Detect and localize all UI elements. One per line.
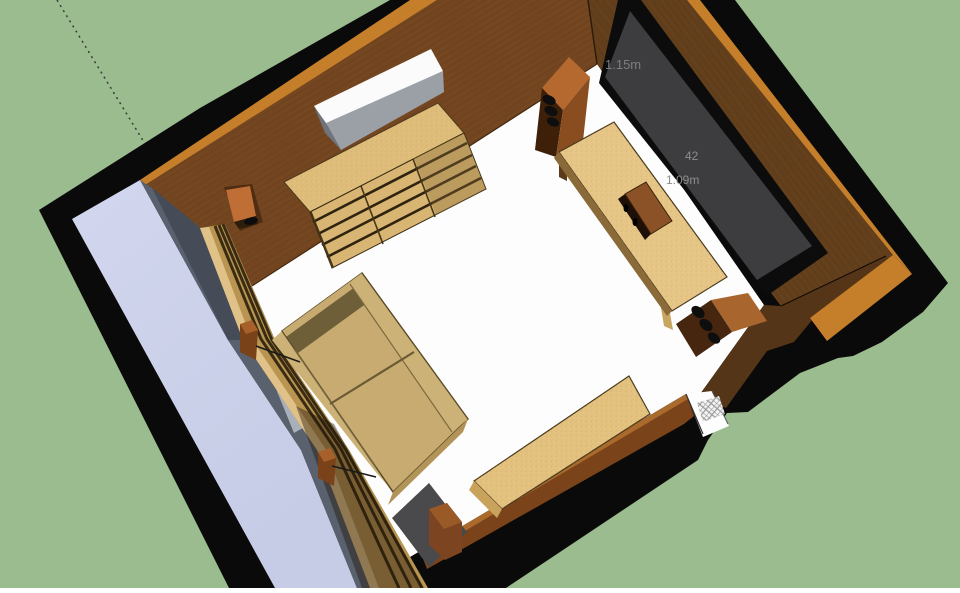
svg-text:42: 42 bbox=[685, 149, 699, 163]
svg-text:1.15m: 1.15m bbox=[605, 57, 641, 72]
svg-text:1.09m: 1.09m bbox=[666, 173, 699, 187]
